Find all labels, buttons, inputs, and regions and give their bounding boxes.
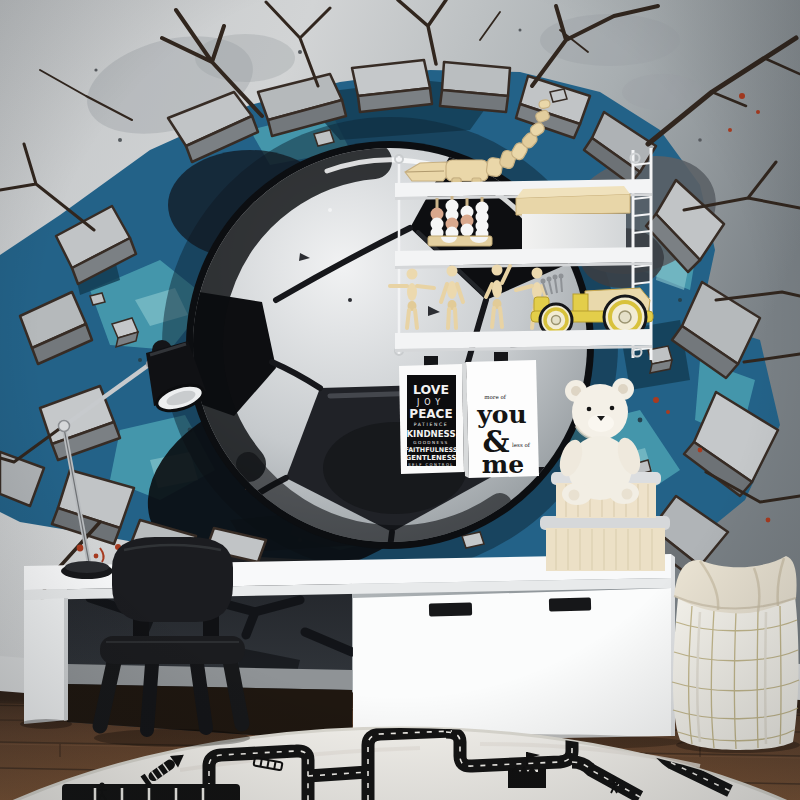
vignette [0, 0, 800, 800]
room-scene: LOVE JOY PEACE PATIENCE KINDNESS GOODNES… [0, 0, 800, 800]
room-illustration: LOVE JOY PEACE PATIENCE KINDNESS GOODNES… [0, 0, 800, 800]
